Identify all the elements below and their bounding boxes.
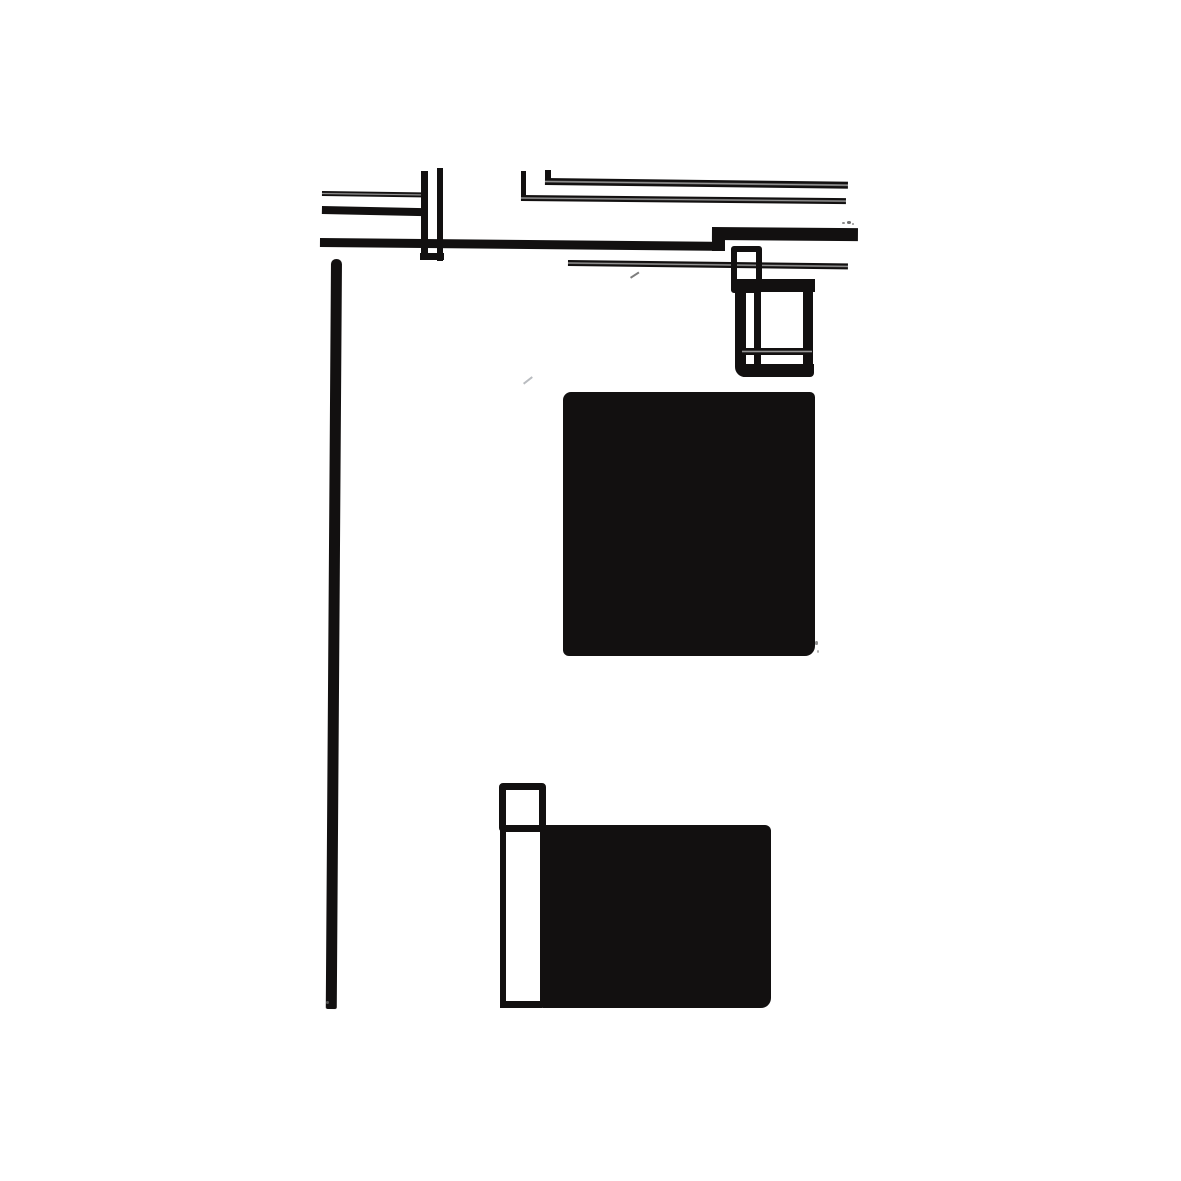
bottom-strip-bottom-edge <box>500 1001 542 1008</box>
ink-speck <box>817 650 819 653</box>
frame-right-edge <box>803 287 813 367</box>
ink-speck <box>815 641 818 645</box>
lower-thin-line <box>568 260 848 269</box>
stray-tick <box>523 376 533 384</box>
main-rule-right <box>712 227 858 241</box>
thin-line-top-left <box>322 191 426 197</box>
frame-inner-vertical <box>754 291 761 374</box>
frame-inner-horizontal <box>742 348 812 355</box>
second-right-line <box>521 195 846 204</box>
stray-tick <box>630 272 639 279</box>
second-right-line-riser <box>521 171 526 198</box>
ink-speck <box>326 1001 329 1004</box>
u-bottom-joint <box>420 253 444 260</box>
upper-right-line <box>545 178 848 189</box>
bottom-strip-left-edge <box>500 828 506 1008</box>
artwork-canvas <box>0 0 1181 1181</box>
main-rule-left <box>320 238 720 251</box>
ink-speck <box>847 221 851 224</box>
bottom-small-square <box>499 783 546 832</box>
mid-line-top-left <box>322 206 422 216</box>
black-square <box>563 392 815 656</box>
ink-speck <box>852 223 854 225</box>
long-vertical-stroke <box>326 259 342 1009</box>
ink-speck <box>842 222 845 224</box>
bottom-black-rectangle <box>540 825 771 1008</box>
